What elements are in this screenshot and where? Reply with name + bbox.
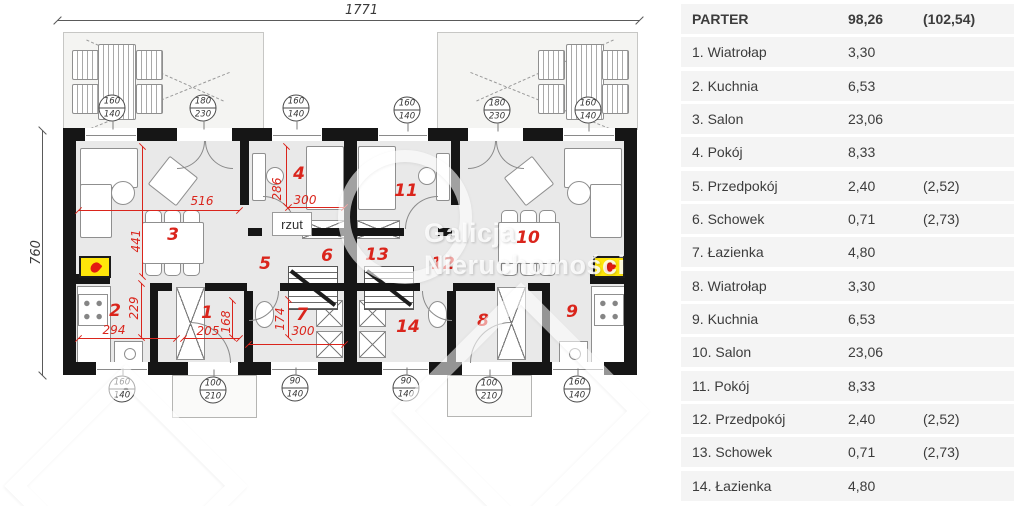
room-area: 0,71 (848, 444, 923, 460)
table-row: 14. Łazienka 4,80 (681, 471, 1014, 501)
window-width: 100 (201, 378, 226, 391)
fireplace-icon (593, 256, 625, 278)
wall-interior (248, 228, 262, 236)
window-size-marker: 90 140 (282, 375, 309, 402)
terrace-chair (72, 50, 99, 80)
room-area: 6,53 (848, 78, 923, 94)
window-size-marker: 160 140 (394, 97, 421, 124)
chair (164, 263, 181, 276)
room-number: 6 (321, 246, 333, 266)
window-height: 140 (283, 389, 308, 401)
wall-interior (528, 283, 542, 291)
window-height: 210 (201, 391, 226, 403)
left-dimension-label: 760 (29, 240, 44, 265)
red-dim-line (78, 210, 240, 211)
room-number: 8 (477, 311, 489, 331)
red-dim-line (142, 146, 143, 277)
room-area: 3,30 (848, 278, 923, 294)
room-area-gross: (2,73) (923, 211, 1014, 227)
room-label: 9. Kuchnia (692, 311, 848, 327)
wall-interior (355, 283, 420, 291)
window-height: 140 (100, 109, 125, 121)
window-height: 210 (477, 391, 502, 403)
window-size-marker: 160 140 (564, 376, 591, 403)
terrace-chair (602, 84, 629, 114)
room-label: 7. Łazienka (692, 244, 848, 260)
room-area: 8,33 (848, 144, 923, 160)
room-label: 3. Salon (692, 111, 848, 127)
red-dimension-label: 300 (294, 193, 317, 207)
red-dimension-label: 168 (219, 311, 233, 334)
room-label: 8. Wiatrołap (692, 278, 848, 294)
wall-interior (150, 283, 158, 362)
red-dim-line (288, 299, 289, 338)
room-area: 8,33 (848, 378, 923, 394)
room-area-gross: (2,73) (923, 444, 1014, 460)
stove-burners (78, 294, 108, 326)
window-size-marker: 160 140 (283, 95, 310, 122)
window-width: 90 (283, 376, 308, 389)
chair (539, 210, 556, 223)
window-size-marker: 90 140 (393, 375, 420, 402)
desk (252, 153, 266, 201)
room-area: 2,40 (848, 411, 923, 427)
wall-interior (453, 283, 495, 291)
terrace-chair (72, 84, 99, 114)
red-dim-line (248, 344, 345, 345)
room-number: 13 (365, 245, 389, 265)
red-dimension-label: 174 (273, 308, 287, 331)
chair (501, 210, 518, 223)
wall-interior (438, 228, 452, 236)
chair (520, 263, 537, 276)
room-area: 0,71 (848, 211, 923, 227)
room-number: 14 (396, 317, 420, 337)
chair (145, 263, 162, 276)
room-label: 10. Salon (692, 344, 848, 360)
terrace-door-gap (468, 128, 523, 141)
room-label: 14. Łazienka (692, 478, 848, 494)
room-area-gross: (2,52) (923, 178, 1014, 194)
table-row: 4. Pokój 8,33 (681, 137, 1014, 167)
red-dimension-label: 300 (292, 324, 315, 338)
room-label: PARTER (692, 11, 848, 27)
room-area: 23,06 (848, 344, 923, 360)
wall-interior (451, 141, 460, 205)
terrace-chair (602, 50, 629, 80)
window-height: 140 (394, 389, 419, 401)
window-height: 140 (110, 390, 135, 402)
room-area-gross: (102,54) (923, 11, 1014, 27)
red-dim-line (78, 338, 177, 339)
bathroom-cabinet (359, 331, 386, 358)
wall-interior (240, 141, 249, 205)
window-size-marker: 180 230 (190, 95, 217, 122)
sofa (590, 184, 622, 238)
red-dimension-label: 229 (127, 297, 141, 320)
chair (183, 263, 200, 276)
terrace-chair (538, 50, 565, 80)
table-row: PARTER 98,26 (102,54) (681, 4, 1014, 34)
window (378, 128, 428, 141)
red-dimension-label: 286 (270, 178, 284, 201)
red-dimension-label: 441 (129, 230, 143, 253)
room-number: 10 (516, 228, 540, 248)
window-size-marker: 180 230 (484, 97, 511, 124)
window-height: 140 (395, 111, 420, 123)
kitchen-sink (114, 341, 143, 364)
red-dim-line (141, 283, 142, 338)
terrace-right (437, 32, 638, 130)
room-area: 3,30 (848, 44, 923, 60)
room-label: 4. Pokój (692, 144, 848, 160)
room-area: 4,80 (848, 244, 923, 260)
sofa-bed (358, 146, 396, 210)
room-label: 6. Schowek (692, 211, 848, 227)
room-number: 7 (296, 305, 308, 325)
window-height: 230 (191, 109, 216, 121)
wall-interior (205, 283, 247, 291)
window-width: 160 (110, 377, 135, 390)
window-width: 160 (576, 98, 601, 111)
top-dimension-label: 1771 (345, 3, 378, 18)
red-dim-line (286, 146, 287, 207)
table-row: 6. Schowek 0,71 (2,73) (681, 204, 1014, 234)
entrance-door-gap (462, 362, 512, 375)
red-dimension-label: 294 (103, 323, 126, 337)
wall-interior (280, 283, 345, 291)
table-row: 5. Przedpokój 2,40 (2,52) (681, 171, 1014, 201)
window (552, 362, 604, 375)
kitchen-sink (559, 341, 588, 364)
window-size-marker: 160 140 (109, 376, 136, 403)
terrace-door-gap (177, 128, 232, 141)
room-area: 2,40 (848, 178, 923, 194)
room-label: 12. Przedpokój (692, 411, 848, 427)
window (85, 128, 137, 141)
table-row: 8. Wiatrołap 3,30 (681, 271, 1014, 301)
wall-left (63, 128, 76, 375)
stove-burners (594, 294, 624, 326)
terrace-chair (136, 50, 163, 80)
table-row: 1. Wiatrołap 3,30 (681, 37, 1014, 67)
red-dimension-label: 516 (191, 194, 214, 208)
room-number: 5 (259, 254, 271, 274)
room-area: 4,80 (848, 478, 923, 494)
window-size-marker: 100 210 (200, 377, 227, 404)
floor-plan: 1771 760 (0, 0, 660, 506)
screenshot-root: 1771 760 (0, 0, 1024, 506)
table-row: 10. Salon 23,06 (681, 337, 1014, 367)
window-height: 230 (485, 111, 510, 123)
room-label: 5. Przedpokój (692, 178, 848, 194)
table-row: 2. Kuchnia 6,53 (681, 71, 1014, 101)
window-height: 140 (284, 109, 309, 121)
table-row: 3. Salon 23,06 (681, 104, 1014, 134)
window-width: 160 (100, 96, 125, 109)
room-number: 12 (431, 254, 455, 274)
desk-chair (418, 167, 436, 185)
window-width: 160 (565, 377, 590, 390)
window-size-marker: 160 140 (575, 97, 602, 124)
table-row: 12. Przedpokój 2,40 (2,52) (681, 404, 1014, 434)
terrace-chair (136, 84, 163, 114)
chair (164, 210, 181, 223)
rzut-label: rzut (281, 217, 303, 232)
wall-center-party (344, 128, 357, 375)
window-width: 90 (394, 376, 419, 389)
room-area: 23,06 (848, 111, 923, 127)
red-dimension-label: 205 (197, 324, 220, 338)
side-table (111, 181, 135, 205)
sofa (80, 184, 112, 238)
wall-interior (158, 283, 172, 291)
room-number: 4 (293, 164, 305, 184)
area-table: PARTER 98,26 (102,54) 1. Wiatrołap 3,30 … (681, 4, 1014, 504)
top-dimension-line (57, 20, 640, 21)
chair (183, 210, 200, 223)
wall-interior (355, 228, 404, 236)
table-row: 9. Kuchnia 6,53 (681, 304, 1014, 334)
window-width: 180 (485, 98, 510, 111)
window-width: 160 (284, 96, 309, 109)
chair (145, 210, 162, 223)
desk (436, 153, 450, 201)
rzut-label-box: rzut (272, 212, 312, 236)
window-width: 160 (395, 98, 420, 111)
window-width: 180 (191, 96, 216, 109)
terrace-left (63, 32, 264, 130)
table-row: 7. Łazienka 4,80 (681, 237, 1014, 267)
window-size-marker: 160 140 (99, 95, 126, 122)
room-number: 1 (201, 303, 213, 323)
room-label: 13. Schowek (692, 444, 848, 460)
window-width: 100 (477, 378, 502, 391)
room-label: 2. Kuchnia (692, 78, 848, 94)
chair (520, 210, 537, 223)
room-label: 11. Pokój (692, 378, 848, 394)
room-label: 1. Wiatrołap (692, 44, 848, 60)
wall-right (624, 128, 637, 375)
chair (539, 263, 556, 276)
window-height: 140 (576, 111, 601, 123)
table-row: 11. Pokój 8,33 (681, 371, 1014, 401)
table-row: 13. Schowek 0,71 (2,73) (681, 437, 1014, 467)
window-height: 140 (565, 390, 590, 402)
wall-interior (542, 283, 550, 362)
room-area: 98,26 (848, 11, 923, 27)
fireplace-icon (79, 256, 111, 278)
window (272, 128, 322, 141)
side-table (567, 181, 591, 205)
room-number: 9 (566, 302, 578, 322)
chair (501, 263, 518, 276)
room-area: 6,53 (848, 311, 923, 327)
room-number: 3 (167, 225, 179, 245)
window-size-marker: 100 210 (476, 377, 503, 404)
window (563, 128, 615, 141)
room-area-gross: (2,52) (923, 411, 1014, 427)
red-dim-line (288, 207, 345, 208)
room-number: 2 (109, 301, 121, 321)
terrace-chair (538, 84, 565, 114)
room-number: 11 (394, 181, 418, 201)
